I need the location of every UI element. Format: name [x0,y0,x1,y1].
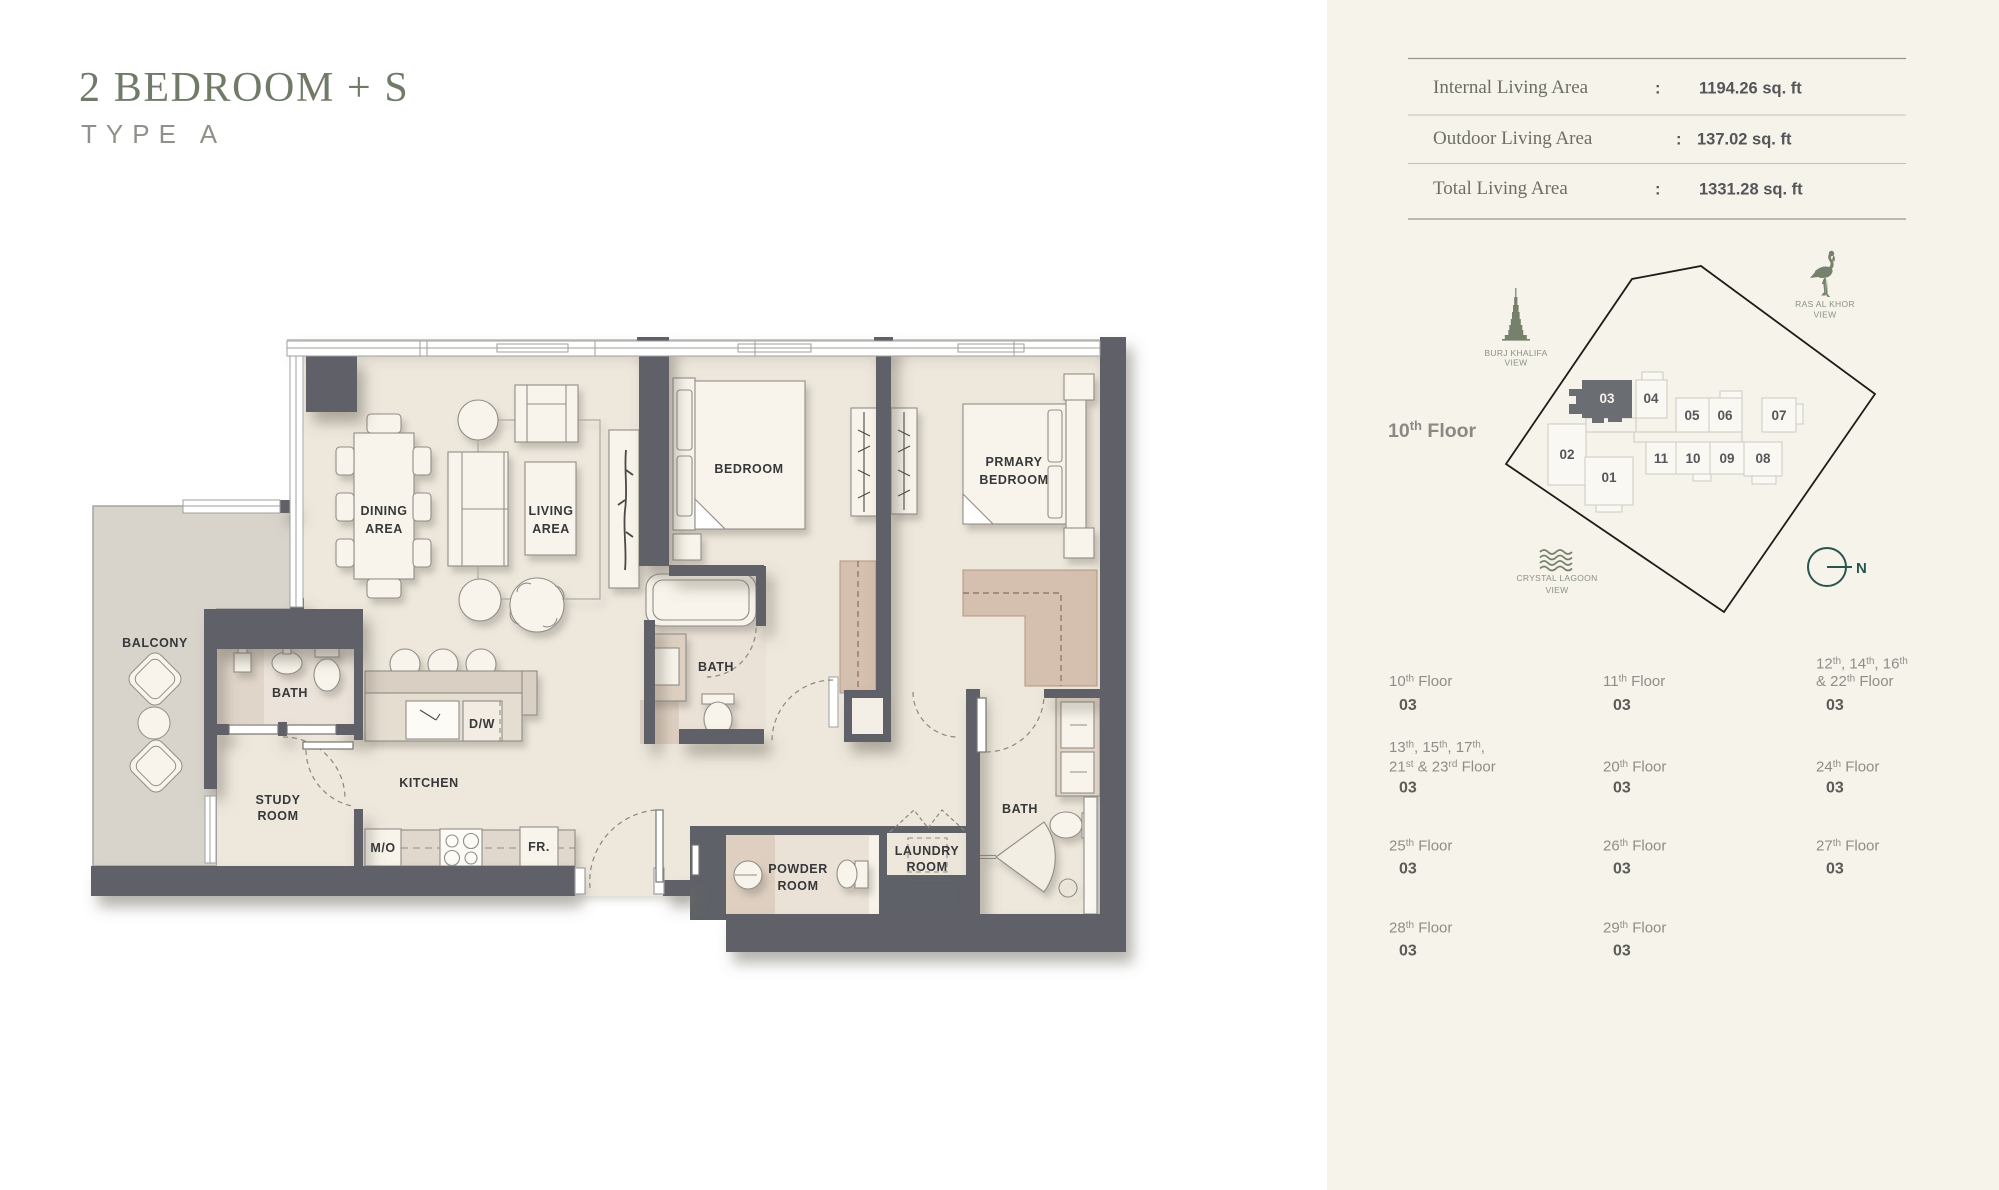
svg-text::: : [1655,181,1661,199]
svg-text::: : [1655,80,1661,98]
svg-text:29th Floor: 29th Floor [1603,920,1666,937]
svg-text:FR.: FR. [528,840,550,854]
svg-text:10th Floor: 10th Floor [1388,418,1477,442]
svg-text:13th, 15th, 17th,: 13th, 15th, 17th, [1389,739,1485,756]
svg-text:24th Floor: 24th Floor [1816,759,1879,776]
svg-text:Outdoor Living Area: Outdoor Living Area [1433,128,1593,149]
svg-text:01: 01 [1601,470,1617,485]
svg-text:VIEW: VIEW [1546,585,1569,595]
svg-text::: : [1676,131,1682,149]
svg-text:11: 11 [1654,451,1669,466]
svg-text:03: 03 [1826,697,1844,714]
svg-text:03: 03 [1399,943,1417,960]
svg-text:AREA: AREA [532,522,570,536]
svg-text:AREA: AREA [365,522,403,536]
svg-text:& 22th Floor: & 22th Floor [1816,673,1894,690]
svg-text:03: 03 [1826,780,1844,797]
svg-text:Total Living Area: Total Living Area [1433,178,1568,199]
svg-text:PRMARY: PRMARY [985,455,1042,469]
svg-text:11th Floor: 11th Floor [1603,673,1665,690]
svg-text:03: 03 [1613,697,1631,714]
svg-text:03: 03 [1613,861,1631,878]
svg-text:RAS AL KHOR: RAS AL KHOR [1795,299,1855,309]
svg-text:POWDER: POWDER [768,862,828,876]
svg-text:03: 03 [1599,391,1615,406]
svg-text:03: 03 [1613,780,1631,797]
svg-text:TYPE A: TYPE A [81,119,226,149]
svg-text:D/W: D/W [469,717,495,731]
svg-text:BURJ KHALIFA: BURJ KHALIFA [1484,348,1547,358]
svg-text:137.02 sq. ft: 137.02 sq. ft [1697,131,1792,149]
svg-text:03: 03 [1826,861,1844,878]
svg-text:LIVING: LIVING [529,504,574,518]
svg-text:05: 05 [1684,408,1700,423]
svg-text:26th Floor: 26th Floor [1603,838,1666,855]
svg-text:BEDROOM: BEDROOM [979,473,1048,487]
svg-text:ROOM: ROOM [777,879,818,893]
svg-text:CRYSTAL LAGOON: CRYSTAL LAGOON [1516,573,1597,583]
svg-text:Internal Living Area: Internal Living Area [1433,77,1589,98]
svg-text:10th Floor: 10th Floor [1389,673,1452,690]
svg-text:08: 08 [1755,451,1771,466]
svg-text:ROOM: ROOM [906,860,947,874]
svg-text:06: 06 [1717,408,1733,423]
svg-text:1194.26 sq. ft: 1194.26 sq. ft [1699,80,1802,98]
svg-text:DINING: DINING [360,504,407,518]
svg-text:STUDY: STUDY [255,793,300,807]
svg-text:M/O: M/O [370,841,395,855]
svg-text:BEDROOM: BEDROOM [714,462,783,476]
svg-text:09: 09 [1719,451,1734,466]
svg-text:02: 02 [1559,447,1574,462]
svg-text:KITCHEN: KITCHEN [399,776,458,790]
svg-text:1331.28 sq. ft: 1331.28 sq. ft [1699,181,1803,199]
svg-text:LAUNDRY: LAUNDRY [895,844,960,858]
svg-text:VIEW: VIEW [1814,310,1837,320]
svg-text:BATH: BATH [272,686,308,700]
svg-text:12th, 14th, 16th: 12th, 14th, 16th [1816,656,1908,673]
svg-text:ROOM: ROOM [257,809,298,823]
svg-text:25th Floor: 25th Floor [1389,838,1452,855]
svg-text:07: 07 [1771,408,1786,423]
svg-text:2 BEDROOM + S: 2 BEDROOM + S [79,65,409,111]
svg-text:21st & 23rd Floor: 21st & 23rd Floor [1389,759,1496,776]
svg-text:28th Floor: 28th Floor [1389,920,1452,937]
svg-text:N: N [1856,560,1867,577]
svg-text:20th Floor: 20th Floor [1603,759,1666,776]
svg-text:BALCONY: BALCONY [122,636,188,650]
svg-text:BATH: BATH [1002,802,1038,816]
svg-text:03: 03 [1613,943,1631,960]
svg-text:03: 03 [1399,780,1417,797]
svg-text:04: 04 [1643,391,1659,406]
svg-text:VIEW: VIEW [1505,358,1528,368]
svg-text:03: 03 [1399,697,1417,714]
svg-text:03: 03 [1399,861,1417,878]
svg-text:27th Floor: 27th Floor [1816,838,1879,855]
svg-text:10: 10 [1685,451,1700,466]
svg-text:BATH: BATH [698,660,734,674]
